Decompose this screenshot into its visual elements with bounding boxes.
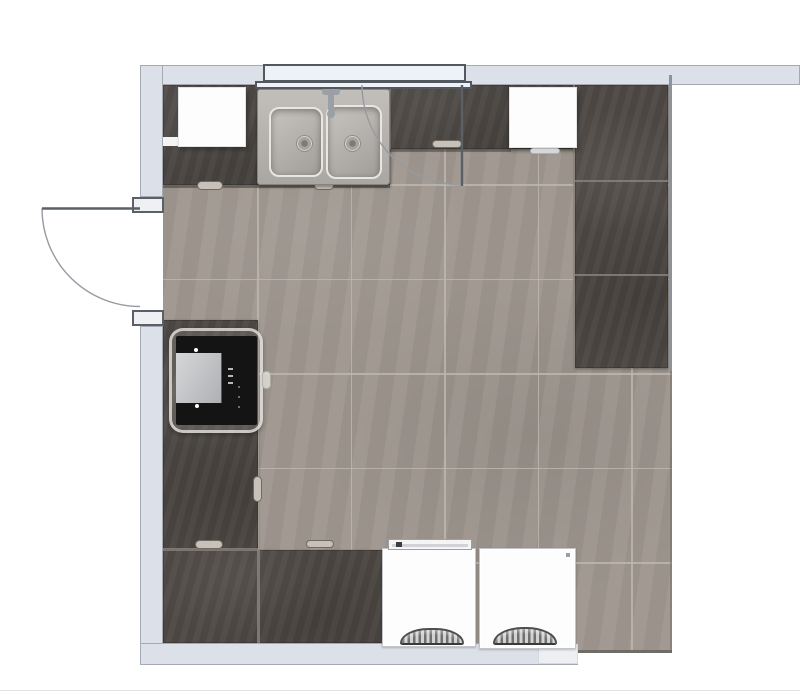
oven-control-dash — [228, 375, 233, 377]
oven-control-dash — [228, 368, 233, 370]
sink-drain-right — [344, 135, 361, 152]
upper-cabinet-right[interactable] — [509, 87, 577, 148]
floor-plan-canvas — [0, 0, 800, 694]
washer-right-corner-mark — [566, 553, 570, 557]
upper-cabinet-right-handle — [530, 148, 560, 154]
floor-tile-seam — [163, 279, 672, 281]
oven-control-mark — [238, 406, 240, 408]
washer-left-power-dot — [396, 542, 402, 547]
door-left-swing-arc — [42, 209, 140, 307]
floor-edge-right — [670, 371, 672, 653]
faucet-knob — [327, 110, 335, 118]
window-top-inner[interactable] — [255, 81, 472, 89]
upper-cabinet-left[interactable] — [178, 87, 246, 147]
oven-control-mark — [238, 396, 240, 398]
oven-side-handle — [262, 371, 271, 389]
floor-tile-seam — [163, 184, 672, 186]
left-door-jamb-bottom — [132, 310, 164, 326]
wall-left-upper[interactable] — [140, 65, 163, 197]
window-top-outer[interactable] — [263, 64, 466, 82]
floor-tile-seam — [631, 85, 633, 653]
oven-hinge-dot-top — [194, 348, 198, 352]
faucet-stem — [328, 92, 334, 112]
counter-white-notch — [163, 137, 179, 146]
canvas-edge — [0, 690, 800, 691]
oven-door-glass — [176, 353, 222, 403]
oven-control-dash — [228, 382, 233, 384]
wall-right[interactable] — [669, 75, 672, 371]
oven-control-mark — [238, 386, 240, 388]
floor-tile-seam — [163, 468, 672, 470]
wall-left-lower[interactable] — [140, 326, 163, 665]
floor-edge-bottom-right — [578, 650, 672, 653]
sink-drain-left — [296, 135, 313, 152]
washer-left-strip-line — [392, 544, 468, 547]
oven-hinge-dot-bottom — [195, 404, 199, 408]
left-door-jamb-top — [132, 197, 164, 213]
door-left[interactable] — [42, 209, 140, 307]
